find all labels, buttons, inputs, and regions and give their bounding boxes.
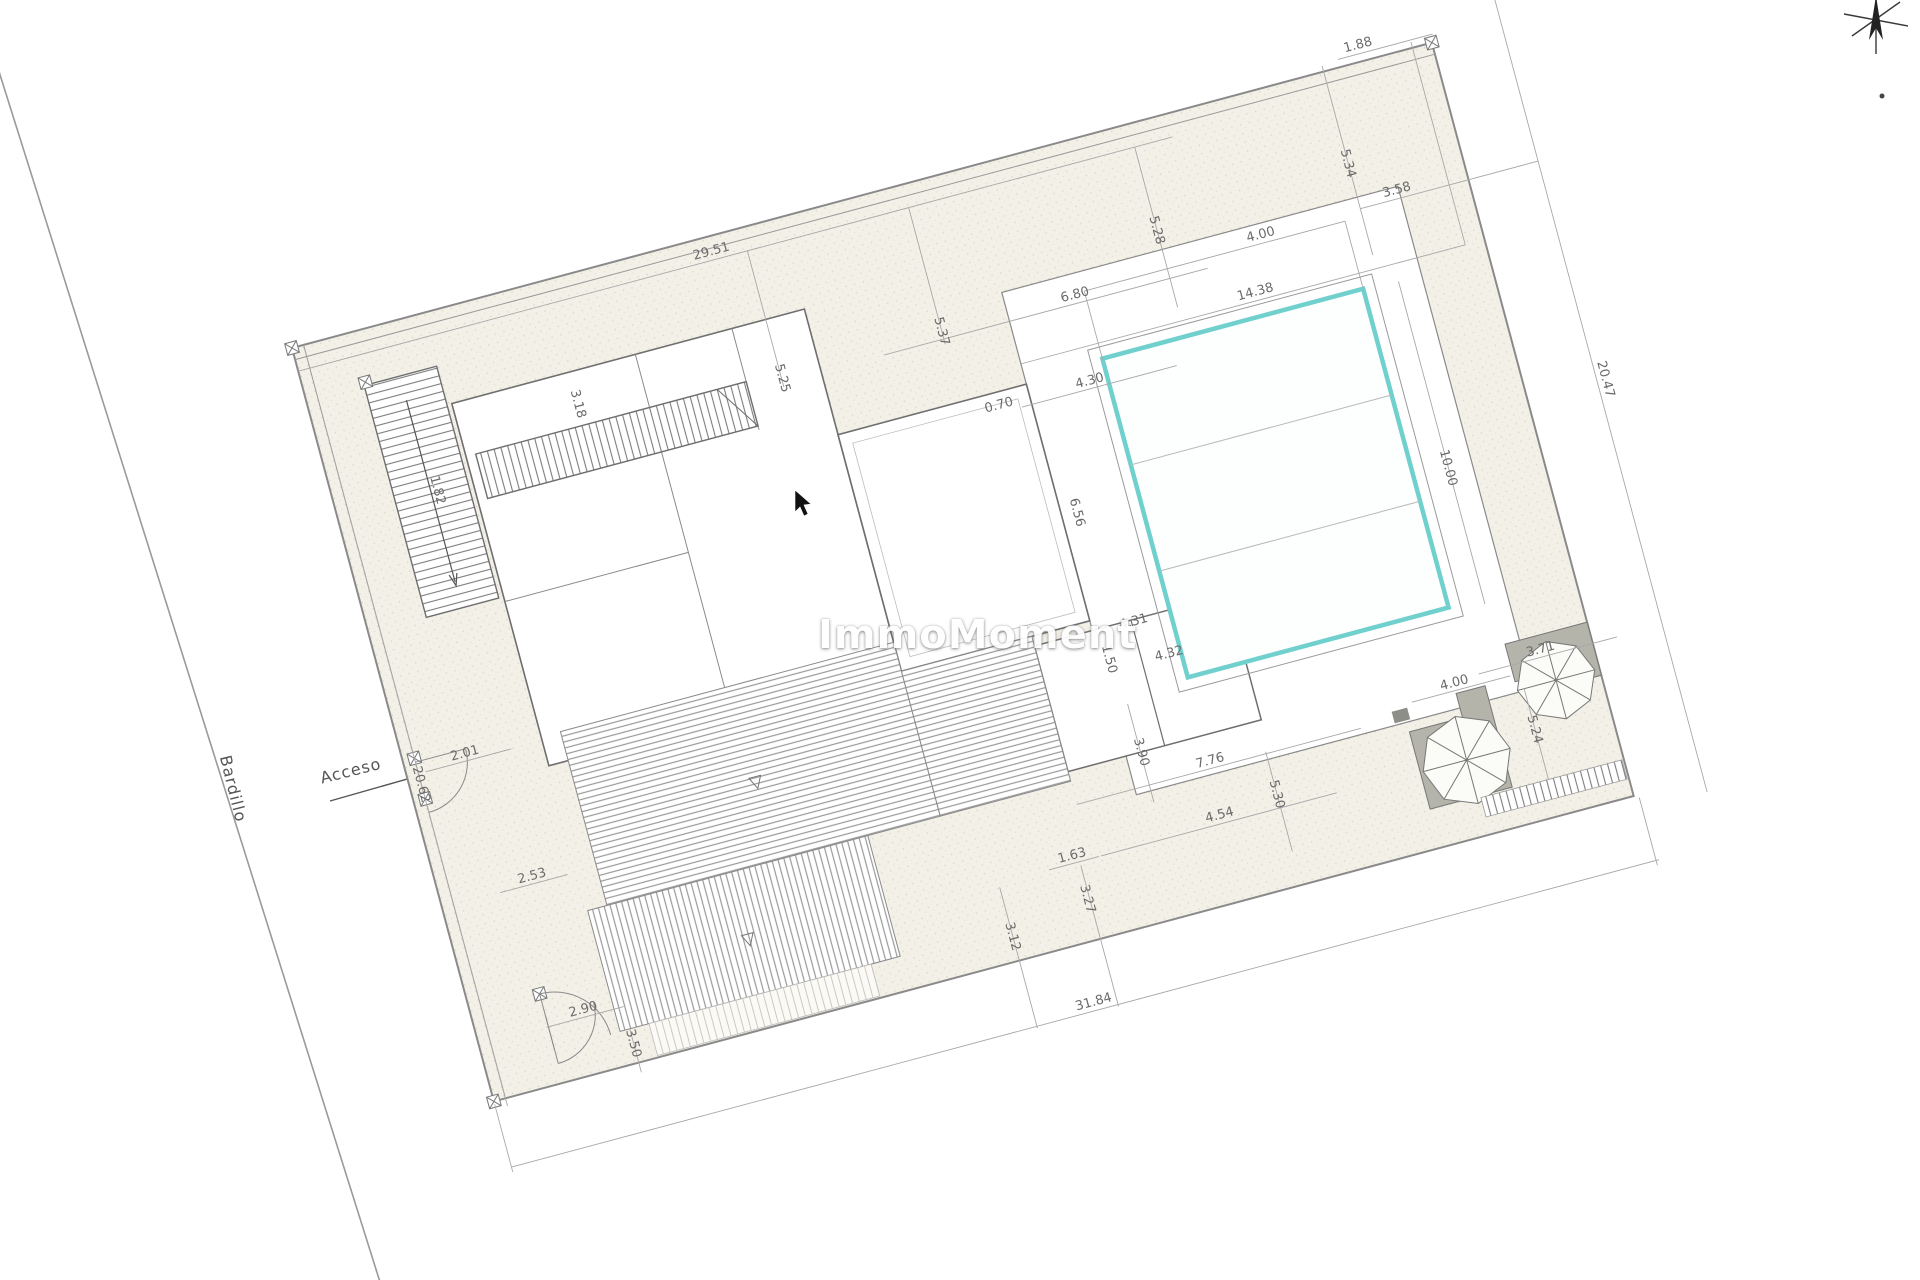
fence-post-icon: [1424, 35, 1439, 50]
fence-post-icon: [487, 1094, 502, 1109]
dimension-label: 1.88: [1342, 34, 1374, 56]
street-name-label: Bardillo: [216, 753, 251, 824]
fence-post-icon: [358, 375, 373, 390]
access-label: Acceso: [318, 754, 383, 787]
page: Bardillo Acceso: [0, 0, 1920, 1280]
street-bardillo: Bardillo: [0, 62, 380, 1280]
floor-plan-drawing: Bardillo Acceso: [0, 0, 1920, 1280]
site-plan: 29.51 1.88 20.47 31.84 20.62 1.82 2.01 2…: [278, 0, 1737, 1173]
fence-post-icon: [285, 341, 300, 356]
north-arrow-icon: [1844, 0, 1908, 99]
street-edge-line: [0, 62, 380, 1280]
